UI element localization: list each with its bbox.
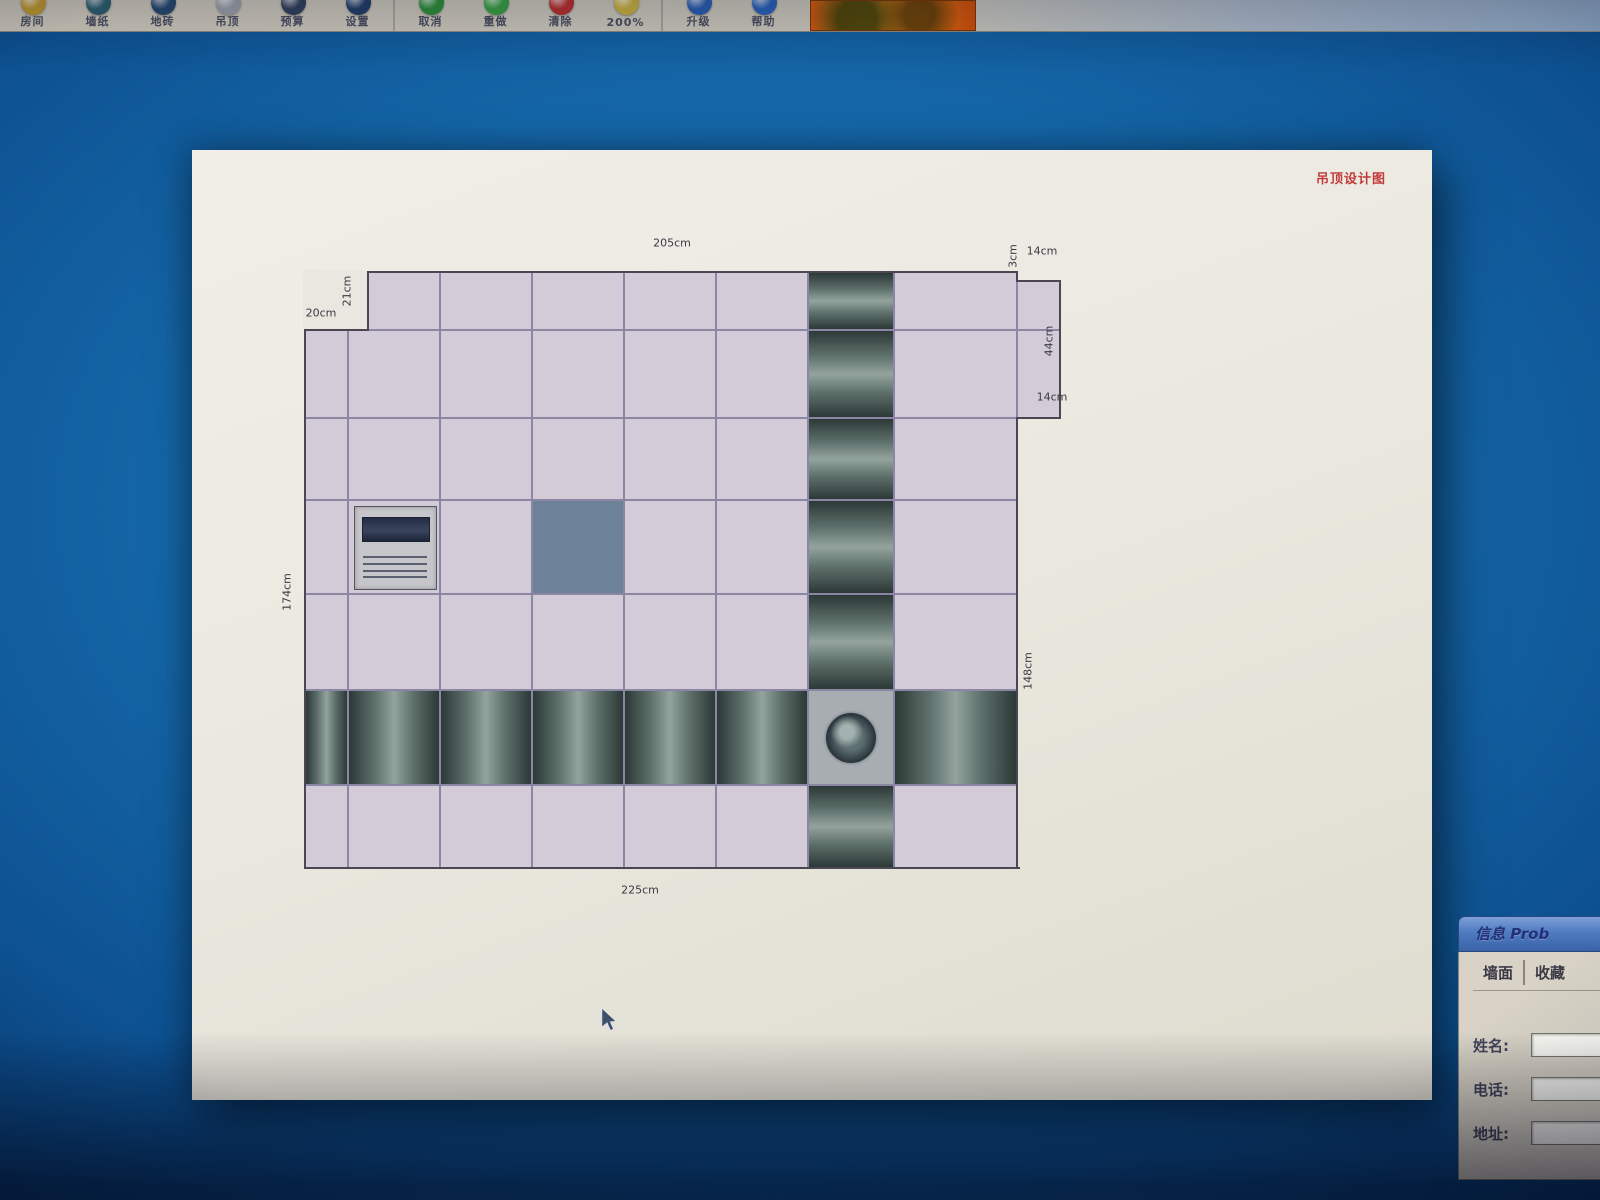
ceiling-tile[interactable] bbox=[716, 785, 808, 868]
field-input[interactable] bbox=[1531, 1121, 1600, 1145]
ceiling-tile[interactable] bbox=[894, 785, 1017, 868]
dark-strip-tile[interactable] bbox=[305, 690, 348, 785]
dark-strip-tile[interactable] bbox=[348, 690, 440, 785]
toolbar-button-budget[interactable]: 预算 bbox=[260, 0, 325, 31]
toolbar-button-label: 预算 bbox=[260, 13, 325, 29]
dark-strip-tile[interactable] bbox=[808, 785, 894, 868]
ceiling-tile[interactable] bbox=[348, 330, 440, 418]
field-label: 姓名: bbox=[1473, 1035, 1531, 1056]
toolbar-button-label: 地砖 bbox=[130, 13, 195, 29]
ceiling-tile[interactable] bbox=[624, 418, 716, 500]
ceiling-tile[interactable] bbox=[894, 500, 1017, 594]
field-input[interactable] bbox=[1531, 1077, 1600, 1101]
ac-vent-grille-line bbox=[363, 556, 426, 558]
dialog-titlebar[interactable]: 信息 Prob bbox=[1458, 916, 1600, 952]
dark-strip-tile[interactable] bbox=[808, 594, 894, 690]
fan-tile[interactable] bbox=[808, 690, 894, 785]
room-outline bbox=[1016, 417, 1018, 869]
ceiling-tile[interactable] bbox=[532, 418, 624, 500]
dimension-label: 148cm bbox=[1022, 652, 1035, 690]
dimension-label: 205cm bbox=[653, 237, 691, 250]
dark-strip-tile[interactable] bbox=[808, 330, 894, 418]
promo-banner[interactable] bbox=[810, 0, 976, 31]
drawing-title: 吊顶设计图 bbox=[1316, 168, 1386, 187]
toolbar-button-label: 设置 bbox=[325, 13, 390, 29]
info-dialog: 信息 Prob 墙面收藏 姓名:电话:地址: bbox=[1458, 916, 1600, 1180]
toolbar: 房间墙纸地砖吊顶预算设置取消重做清除200%升级帮助 bbox=[0, 0, 1600, 32]
ceiling-tile[interactable] bbox=[532, 330, 624, 418]
room-notch bbox=[303, 270, 368, 330]
room-outline bbox=[1016, 417, 1061, 419]
ceiling-tile[interactable] bbox=[305, 330, 348, 418]
ceiling-tile[interactable] bbox=[894, 272, 1017, 330]
field-label: 地址: bbox=[1473, 1123, 1531, 1144]
room-outline bbox=[367, 271, 1018, 273]
dialog-tabs: 墙面收藏 bbox=[1473, 960, 1600, 991]
dimension-label: 21cm bbox=[341, 276, 354, 307]
room-outline bbox=[304, 329, 369, 331]
toolbar-button-room[interactable]: 房间 bbox=[0, 0, 65, 31]
ceiling-tile[interactable] bbox=[305, 500, 348, 594]
ceiling-tile[interactable] bbox=[894, 330, 1017, 418]
dialog-body: 墙面收藏 姓名:电话:地址: bbox=[1458, 952, 1600, 1180]
toolbar-button-help[interactable]: 帮助 bbox=[731, 0, 796, 31]
ceiling-tile[interactable] bbox=[440, 594, 532, 690]
toolbar-button-label: 升级 bbox=[666, 13, 731, 29]
ceiling-tile[interactable] bbox=[305, 418, 348, 500]
toolbar-button-label: 重做 bbox=[463, 13, 528, 29]
ceiling-tile[interactable] bbox=[348, 785, 440, 868]
ac-vent-grille-line bbox=[363, 570, 426, 572]
field-input[interactable] bbox=[1531, 1033, 1600, 1057]
toolbar-button-wallpaper[interactable]: 墙纸 bbox=[65, 0, 130, 31]
ac-vent-grille-line bbox=[363, 576, 426, 578]
ceiling-tile[interactable] bbox=[894, 418, 1017, 500]
ceiling-tile[interactable] bbox=[624, 330, 716, 418]
toolbar-button-label: 墙纸 bbox=[65, 13, 130, 29]
dialog-field-row: 地址: bbox=[1473, 1121, 1600, 1145]
room-outline bbox=[1016, 280, 1061, 282]
toolbar-button-undo[interactable]: 取消 bbox=[398, 0, 463, 31]
dark-strip-tile[interactable] bbox=[808, 418, 894, 500]
ceiling-tile[interactable] bbox=[716, 272, 808, 330]
toolbar-button-label: 取消 bbox=[398, 13, 463, 29]
ceiling-tile[interactable] bbox=[305, 594, 348, 690]
ceiling-fan-icon bbox=[826, 713, 876, 763]
desktop: { "toolbar": { "groups": [ {"items": [ {… bbox=[0, 0, 1600, 1200]
dialog-tab-0[interactable]: 墙面 bbox=[1473, 960, 1523, 985]
dimension-label: 3cm bbox=[1007, 244, 1020, 268]
toolbar-button-settings[interactable]: 设置 bbox=[325, 0, 390, 31]
dark-strip-tile[interactable] bbox=[532, 690, 624, 785]
toolbar-button-label: 清除 bbox=[528, 13, 593, 29]
dark-strip-tile[interactable] bbox=[808, 500, 894, 594]
toolbar-button-zoom[interactable]: 200% bbox=[593, 0, 658, 31]
dimension-label: 174cm bbox=[281, 573, 294, 611]
accent-tile[interactable] bbox=[532, 500, 624, 594]
ceiling-tile[interactable] bbox=[440, 418, 532, 500]
ceiling-tile[interactable] bbox=[624, 594, 716, 690]
ceiling-tile[interactable] bbox=[440, 272, 532, 330]
ceiling-tile[interactable] bbox=[624, 785, 716, 868]
toolbar-button-label: 房间 bbox=[0, 13, 65, 29]
ceiling-tile[interactable] bbox=[716, 500, 808, 594]
field-label: 电话: bbox=[1473, 1079, 1531, 1100]
ceiling-tile[interactable] bbox=[716, 594, 808, 690]
dark-strip-tile[interactable] bbox=[894, 690, 1017, 785]
toolbar-divider bbox=[393, 0, 395, 31]
mouse-cursor bbox=[598, 1008, 620, 1032]
ceiling-tile[interactable] bbox=[440, 500, 532, 594]
ceiling-tile[interactable] bbox=[532, 272, 624, 330]
toolbar-button-floor-tile[interactable]: 地砖 bbox=[130, 0, 195, 31]
ceiling-tile[interactable] bbox=[1017, 281, 1060, 330]
ac-vent-grille-line bbox=[363, 563, 426, 565]
ceiling-tile[interactable] bbox=[716, 330, 808, 418]
toolbar-button-label: 吊顶 bbox=[195, 13, 260, 29]
dimension-label: 225cm bbox=[621, 884, 659, 897]
dark-strip-tile[interactable] bbox=[716, 690, 808, 785]
toolbar-button-ceiling[interactable]: 吊顶 bbox=[195, 0, 260, 31]
ceiling-tile[interactable] bbox=[624, 500, 716, 594]
ac-vent-tile[interactable] bbox=[348, 500, 440, 594]
toolbar-button-label: 帮助 bbox=[731, 13, 796, 29]
room-outline bbox=[304, 329, 306, 869]
toolbar-button-clear[interactable]: 清除 bbox=[528, 0, 593, 31]
ceiling-tile[interactable] bbox=[305, 785, 348, 868]
dimension-label: 14cm bbox=[1037, 391, 1068, 404]
ceiling-tile[interactable] bbox=[894, 594, 1017, 690]
ceiling-tile[interactable] bbox=[716, 418, 808, 500]
dialog-field-row: 电话: bbox=[1473, 1077, 1600, 1101]
dark-strip-tile[interactable] bbox=[808, 272, 894, 330]
ceiling-tile[interactable] bbox=[532, 785, 624, 868]
toolbar-button-redo[interactable]: 重做 bbox=[463, 0, 528, 31]
ceiling-tile[interactable] bbox=[348, 418, 440, 500]
toolbar-divider bbox=[661, 0, 663, 31]
zoom-icon bbox=[614, 0, 639, 15]
dialog-field-row: 姓名: bbox=[1473, 1033, 1600, 1057]
ac-vent-screen bbox=[362, 517, 430, 541]
ceiling-tile[interactable] bbox=[440, 330, 532, 418]
room-outline bbox=[304, 867, 1020, 869]
ceiling-tile[interactable] bbox=[532, 594, 624, 690]
dimension-label: 14cm bbox=[1027, 245, 1058, 258]
toolbar-button-label: 200% bbox=[593, 16, 658, 29]
dark-strip-tile[interactable] bbox=[624, 690, 716, 785]
ac-vent-icon bbox=[354, 506, 437, 591]
dialog-fields: 姓名:电话:地址: bbox=[1473, 991, 1600, 1145]
room-outline bbox=[367, 271, 369, 331]
dark-strip-tile[interactable] bbox=[440, 690, 532, 785]
ceiling-tile[interactable] bbox=[624, 272, 716, 330]
toolbar-button-upgrade[interactable]: 升级 bbox=[666, 0, 731, 31]
ceiling-tile[interactable] bbox=[440, 785, 532, 868]
dialog-tab-1[interactable]: 收藏 bbox=[1523, 960, 1575, 985]
dimension-label: 20cm bbox=[306, 307, 337, 320]
dimension-label: 44cm bbox=[1043, 326, 1056, 357]
ceiling-tile[interactable] bbox=[348, 594, 440, 690]
